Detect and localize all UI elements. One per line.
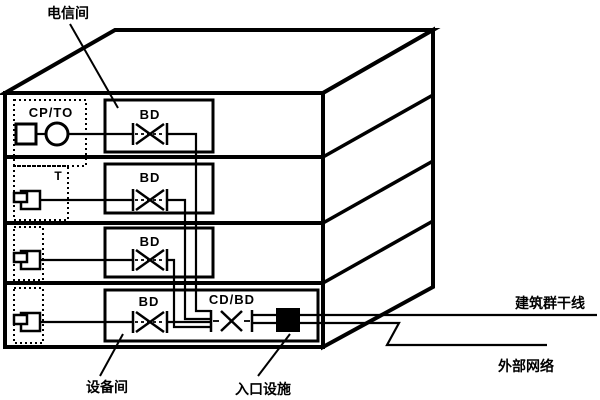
label-bd-floor4: BD xyxy=(139,294,160,309)
label-external-network: 外部网络 xyxy=(498,358,554,374)
label-cp-to: CP/TO xyxy=(29,105,74,120)
diagram-canvas: 电信间 CP/TO T BD BD BD BD CD/BD 设备间 入口设施 建… xyxy=(0,0,600,400)
label-bd-floor2: BD xyxy=(140,170,161,185)
label-telecom-room: 电信间 xyxy=(47,5,89,21)
outlet-notch-floor4 xyxy=(14,315,27,324)
building-cabling-diagram: 电信间 CP/TO T BD BD BD BD CD/BD 设备间 入口设施 建… xyxy=(0,0,600,400)
label-equipment-room: 设备间 xyxy=(86,379,128,395)
label-bd-floor1: BD xyxy=(140,107,161,122)
label-t-floor2: T xyxy=(54,169,62,183)
to-ellipse-icon xyxy=(46,123,68,145)
outlet-notch-floor3 xyxy=(14,253,27,262)
cp-square-icon xyxy=(16,124,36,144)
label-bd-floor3: BD xyxy=(140,234,161,249)
label-campus-backbone: 建筑群干线 xyxy=(515,295,585,311)
label-cd-bd: CD/BD xyxy=(209,292,255,307)
label-entrance-facility: 入口设施 xyxy=(235,381,291,397)
entrance-facility-icon xyxy=(276,308,300,332)
outlet-notch-floor2 xyxy=(14,193,27,202)
